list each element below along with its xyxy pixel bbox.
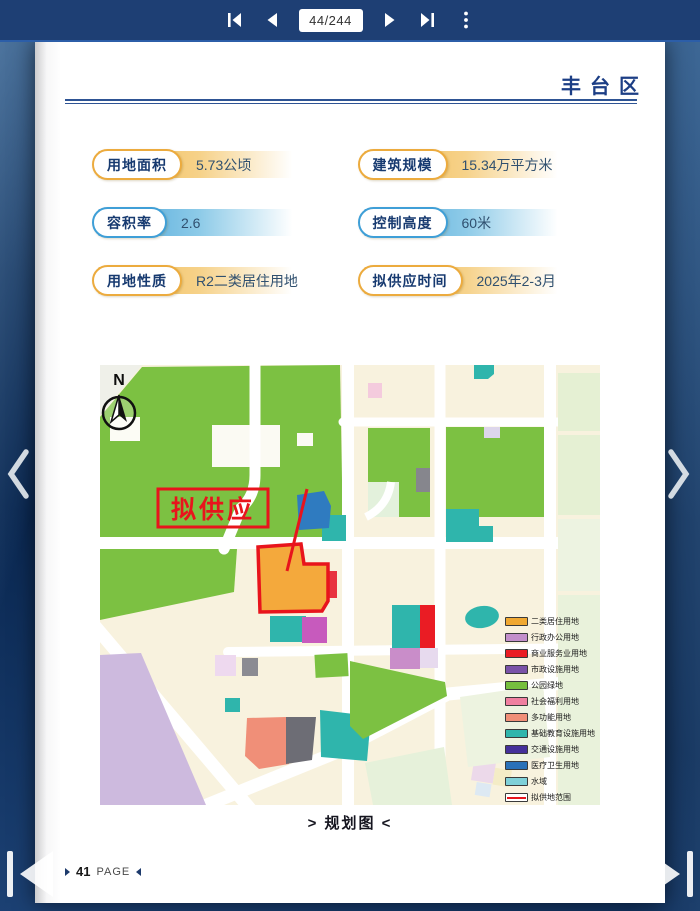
page-indicator-input[interactable]: 44/244	[299, 9, 363, 32]
previous-page-icon	[265, 12, 279, 28]
planning-map: N 拟供应 二类居住用地行政办公用地商业服务业用地市政设施用地公园绿地社会福利用…	[100, 365, 600, 805]
legend-swatch	[505, 665, 528, 674]
header-rule-bottom	[65, 103, 637, 104]
info-card-3: 控制高度60米	[358, 207, 607, 238]
legend-item: 水域	[505, 777, 601, 786]
callout-label: 拟供应	[171, 495, 255, 524]
footer-arrow-right-icon	[65, 868, 70, 876]
next-page-button[interactable]	[380, 10, 400, 30]
legend-label: 水域	[531, 778, 547, 786]
info-card-value: 15.34万平方米	[462, 155, 553, 175]
footer-arrow-left-icon	[136, 868, 141, 876]
legend-label: 公园绿地	[531, 682, 563, 690]
legend-swatch	[505, 649, 528, 658]
legend-swatch	[505, 633, 528, 642]
info-card-label: 拟供应时间	[358, 265, 463, 296]
info-card-label: 容积率	[92, 207, 167, 238]
footer-page-number: 41	[76, 864, 90, 879]
header-rule-top	[65, 99, 637, 101]
info-card-value: 2.6	[181, 215, 200, 231]
legend-label: 市政设施用地	[531, 666, 579, 674]
legend-swatch	[505, 729, 528, 738]
info-card-4: 用地性质R2二类居住用地	[92, 265, 341, 296]
legend-swatch	[505, 793, 528, 802]
viewer-toolbar: 44/244	[0, 0, 700, 42]
kebab-menu-icon	[463, 11, 469, 29]
info-card-1: 建筑规模15.34万平方米	[358, 149, 607, 180]
info-card-label: 用地面积	[92, 149, 182, 180]
legend-label: 医疗卫生用地	[531, 762, 579, 770]
chevron-left-icon	[5, 448, 31, 500]
info-card-value: 2025年2-3月	[477, 271, 556, 291]
legend-swatch	[505, 745, 528, 754]
legend-swatch	[505, 761, 528, 770]
info-card-label: 控制高度	[358, 207, 448, 238]
legend-swatch	[505, 617, 528, 626]
district-title: 丰台区	[561, 70, 648, 99]
document-page: 丰台区 用地面积5.73公顷建筑规模15.34万平方米容积率2.6控制高度60米…	[35, 42, 665, 903]
legend-item: 公园绿地	[505, 681, 601, 690]
info-card-5: 拟供应时间2025年2-3月	[358, 265, 607, 296]
chevron-right-icon	[666, 448, 692, 500]
info-card-0: 用地面积5.73公顷	[92, 149, 341, 180]
legend-label: 拟供地范围	[531, 794, 571, 802]
last-page-icon	[418, 12, 436, 28]
previous-page-button[interactable]	[262, 10, 282, 30]
more-options-button[interactable]	[456, 10, 476, 30]
legend-item: 市政设施用地	[505, 665, 601, 674]
legend-label: 商业服务业用地	[531, 650, 587, 658]
next-page-icon	[383, 12, 397, 28]
legend-item: 医疗卫生用地	[505, 761, 601, 770]
legend-label: 基础教育设施用地	[531, 730, 595, 738]
info-card-label: 用地性质	[92, 265, 182, 296]
legend-swatch	[505, 697, 528, 706]
legend-label: 行政办公用地	[531, 634, 579, 642]
previous-page-chevron[interactable]	[5, 448, 31, 505]
legend-item: 交通设施用地	[505, 745, 601, 754]
corner-first-page-control[interactable]	[3, 849, 57, 904]
footer-page-label: PAGE	[96, 866, 130, 878]
corner-last-page-control[interactable]	[643, 849, 697, 904]
next-page-chevron[interactable]	[666, 448, 692, 505]
legend-label: 社会福利用地	[531, 698, 579, 706]
legend-item: 商业服务业用地	[505, 649, 601, 658]
legend-item: 行政办公用地	[505, 633, 601, 642]
info-card-2: 容积率2.6	[92, 207, 341, 238]
legend-item: 基础教育设施用地	[505, 729, 601, 738]
info-card-value: 60米	[462, 213, 492, 233]
legend-swatch	[505, 681, 528, 690]
legend-item: 拟供地范围	[505, 793, 601, 802]
info-card-value: R2二类居住用地	[196, 271, 298, 291]
first-page-icon	[226, 12, 244, 28]
legend-label: 多功能用地	[531, 714, 571, 722]
legend-item: 二类居住用地	[505, 617, 601, 626]
info-grid: 用地面积5.73公顷建筑规模15.34万平方米容积率2.6控制高度60米用地性质…	[92, 149, 606, 296]
legend-swatch	[505, 777, 528, 786]
legend-label: 交通设施用地	[531, 746, 579, 754]
skip-to-start-icon	[3, 849, 57, 899]
page-footer: 41 PAGE	[65, 864, 141, 879]
map-legend: 二类居住用地行政办公用地商业服务业用地市政设施用地公园绿地社会福利用地多功能用地…	[505, 617, 601, 809]
map-caption: > 规划图 <	[35, 812, 665, 833]
info-card-value: 5.73公顷	[196, 155, 251, 175]
skip-to-end-icon	[643, 849, 697, 899]
legend-item: 多功能用地	[505, 713, 601, 722]
north-label: N	[113, 372, 125, 389]
last-page-button[interactable]	[417, 10, 437, 30]
info-card-label: 建筑规模	[358, 149, 448, 180]
first-page-button[interactable]	[225, 10, 245, 30]
legend-swatch	[505, 713, 528, 722]
legend-label: 二类居住用地	[531, 618, 579, 626]
legend-item: 社会福利用地	[505, 697, 601, 706]
